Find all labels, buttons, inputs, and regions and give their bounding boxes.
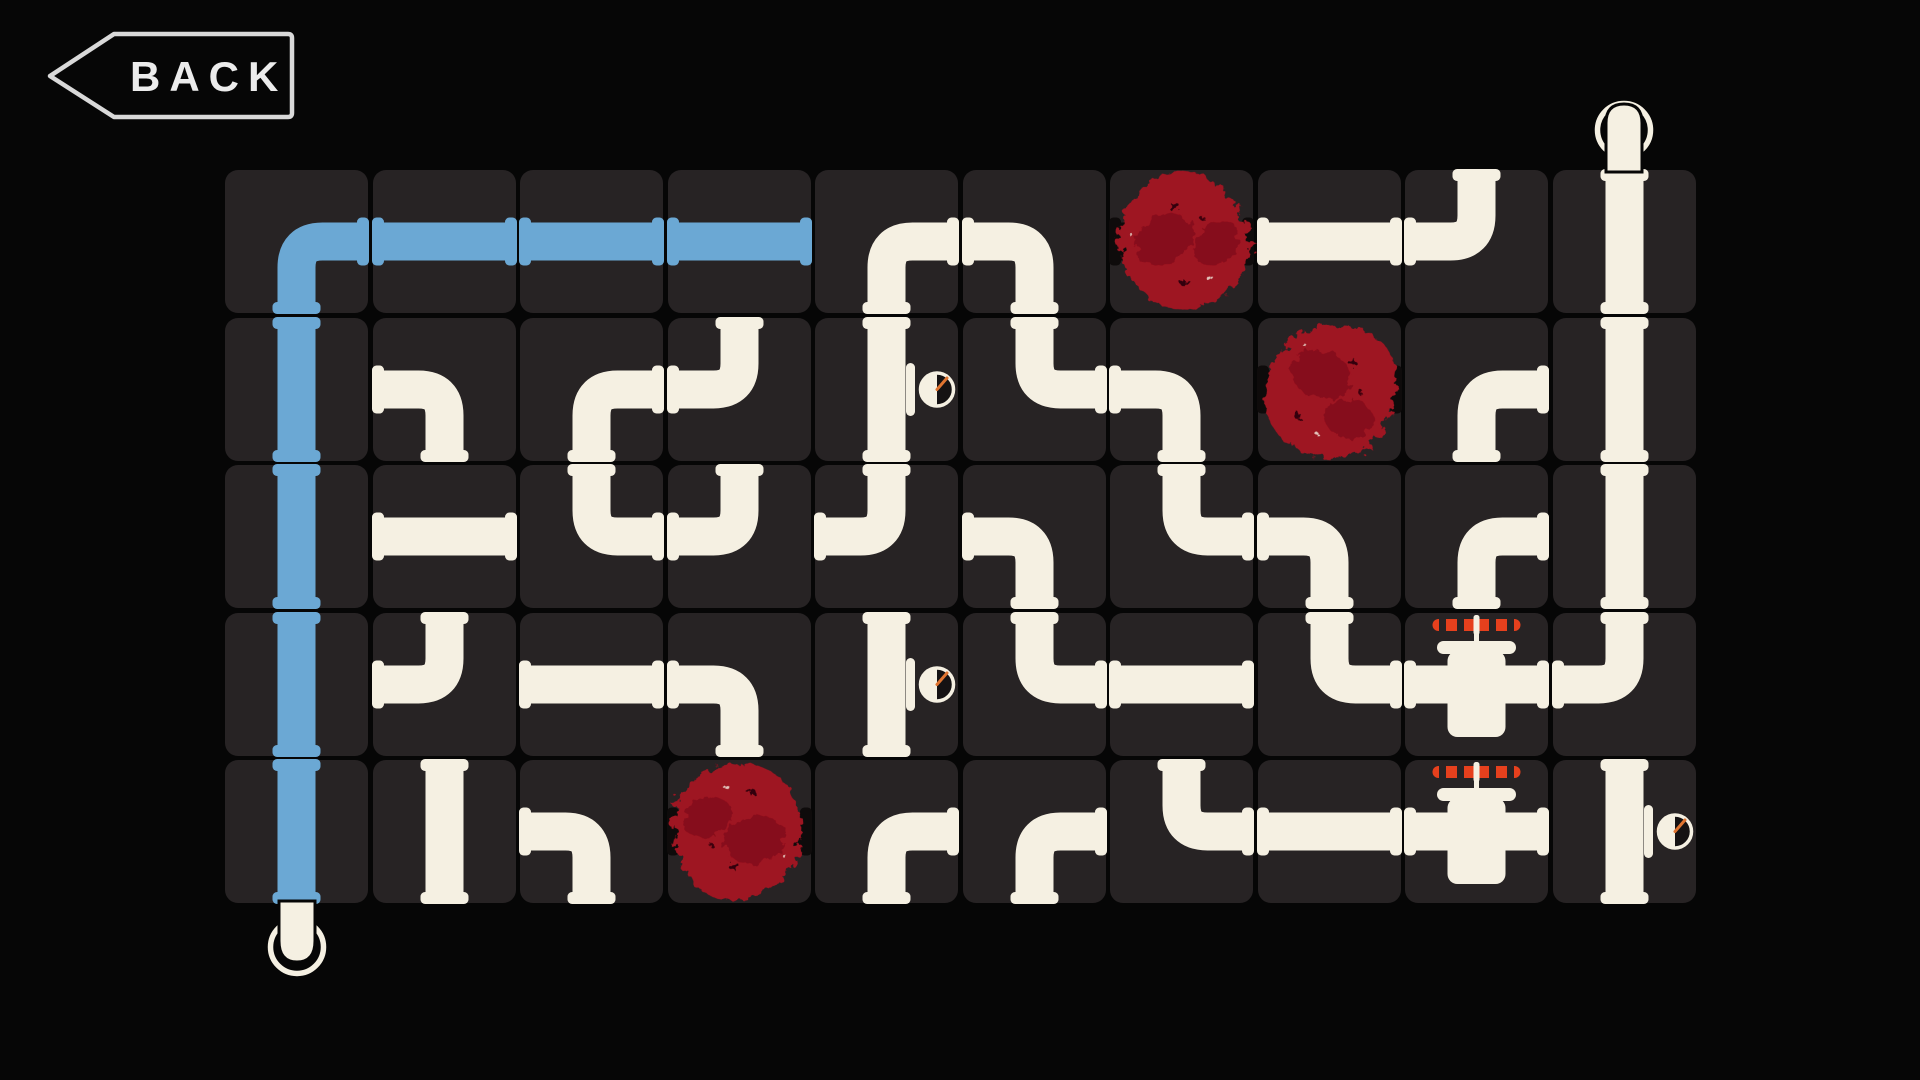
pipe-tile-r2c6[interactable]: [1110, 465, 1253, 608]
pipe-tile-r1c5[interactable]: [963, 318, 1106, 461]
pipe-tile-r3c9[interactable]: [1553, 613, 1696, 756]
pipe-tile-r2c5[interactable]: [963, 465, 1106, 608]
back-arrow-outline-icon: BACK: [42, 28, 302, 123]
pipe-tile-r4c7[interactable]: [1258, 760, 1401, 903]
pipe-tile-r4c1[interactable]: [373, 760, 516, 903]
pipe-tile-r0c2[interactable]: [520, 170, 663, 313]
valve-handle-icon: [1433, 762, 1521, 782]
pipe-tile-r0c1[interactable]: [373, 170, 516, 313]
pipe-tile-r2c3[interactable]: [668, 465, 811, 608]
pipe-tile-r1c0[interactable]: [225, 318, 368, 461]
pipe-tile-r3c1[interactable]: [373, 613, 516, 756]
pressure-gauge-icon: [1644, 805, 1692, 858]
pipe-tile-r1c4[interactable]: [815, 318, 958, 461]
pipe-tile-r2c9[interactable]: [1553, 465, 1696, 608]
pipe-tile-r2c4[interactable]: [815, 465, 958, 608]
pipe-endpoint-bottom: [257, 901, 337, 994]
pipe-tile-r3c4[interactable]: [815, 613, 958, 756]
pipe-board: [225, 170, 1696, 903]
pipe-tile-r0c7[interactable]: [1258, 170, 1401, 313]
pressure-gauge-icon: [906, 363, 954, 416]
pipe-tile-r3c6[interactable]: [1110, 613, 1253, 756]
pipe-tile-r0c6[interactable]: [1110, 170, 1253, 313]
pipe-tile-r2c0[interactable]: [225, 465, 368, 608]
pipe-tile-r4c6[interactable]: [1110, 760, 1253, 903]
pipe-tile-r2c7[interactable]: [1258, 465, 1401, 608]
back-button-label: BACK: [130, 53, 287, 100]
pipe-tile-r3c2[interactable]: [520, 613, 663, 756]
pipe-tile-r1c8[interactable]: [1405, 318, 1548, 461]
pipe-tile-r3c7[interactable]: [1258, 613, 1401, 756]
pipe-tile-r0c8[interactable]: [1405, 170, 1548, 313]
valve-handle-icon: [1433, 615, 1521, 635]
pipe-endpoint-top: [1584, 86, 1664, 179]
pressure-gauge-icon: [906, 658, 954, 711]
pipe-tile-r0c9[interactable]: [1553, 170, 1696, 313]
pipe-tile-r1c6[interactable]: [1110, 318, 1253, 461]
pipe-tile-r4c4[interactable]: [815, 760, 958, 903]
pipe-tile-r3c3[interactable]: [668, 613, 811, 756]
damage-blob: [653, 746, 821, 917]
pipe-tile-r1c1[interactable]: [373, 318, 516, 461]
pipe-tile-r2c1[interactable]: [373, 465, 516, 608]
pipe-tile-r1c2[interactable]: [520, 318, 663, 461]
pipe-tile-r4c0[interactable]: [225, 760, 368, 903]
pipe-tile-r2c8[interactable]: [1405, 465, 1548, 608]
pipe-tile-r1c9[interactable]: [1553, 318, 1696, 461]
endpoint-stub: [279, 901, 315, 962]
game-screen: BACK: [0, 0, 1920, 1080]
back-button[interactable]: BACK: [42, 28, 302, 123]
pipe-tile-r3c0[interactable]: [225, 613, 368, 756]
damage-blob: [1255, 312, 1406, 468]
pipe-tile-r0c3[interactable]: [668, 170, 811, 313]
pipe-tile-r3c8[interactable]: [1405, 613, 1548, 756]
pipe-tile-r0c5[interactable]: [963, 170, 1106, 313]
pipe-tile-r4c9[interactable]: [1553, 760, 1696, 903]
pipe-tile-r4c2[interactable]: [520, 760, 663, 903]
pipe-tile-r0c0[interactable]: [225, 170, 368, 313]
endpoint-stub: [1606, 104, 1642, 172]
pipe-tile-r4c3[interactable]: [668, 760, 811, 903]
pipe-tile-r1c7[interactable]: [1258, 318, 1401, 461]
pipe-tile-r2c2[interactable]: [520, 465, 663, 608]
pipe-tile-r3c5[interactable]: [963, 613, 1106, 756]
pipe-tile-r4c5[interactable]: [963, 760, 1106, 903]
pipe-tile-r1c3[interactable]: [668, 318, 811, 461]
pipe-tile-r0c4[interactable]: [815, 170, 958, 313]
pipe-tile-r4c8[interactable]: [1405, 760, 1548, 903]
